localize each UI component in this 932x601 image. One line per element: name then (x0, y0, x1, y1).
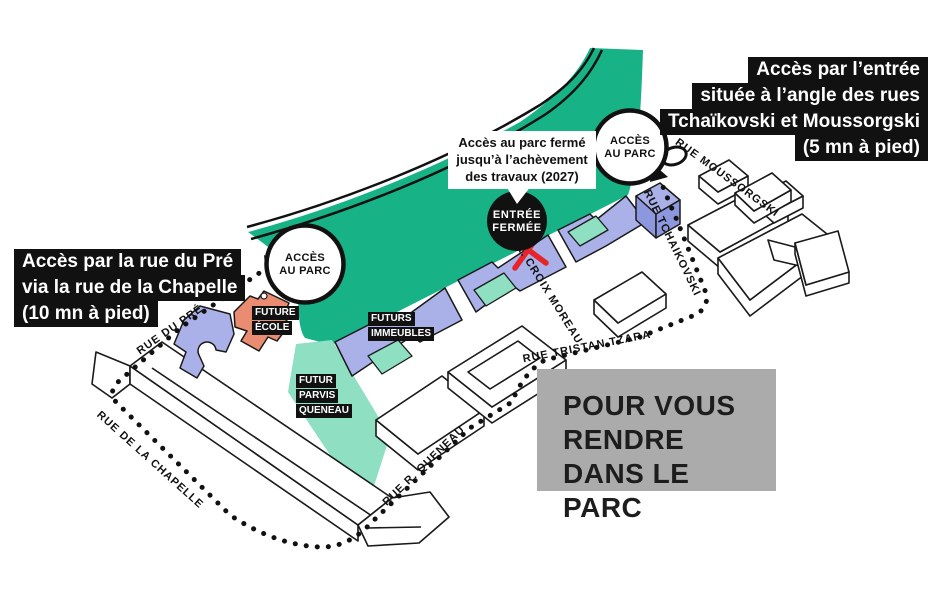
access-circle-left-label: ACCÈS AU PARC (260, 252, 350, 278)
annotation-access-right: Accès par l’entrée située à l’angle des … (660, 57, 928, 161)
destination-panel: POUR VOUS RENDRE DANS LE PARC (537, 369, 776, 491)
label-future-ecole: FUTURE ÉCOLE (252, 306, 299, 336)
bubble-line: Accès au parc fermé (448, 134, 596, 151)
label-futur-parvis-queneau: FUTUR PARVIS QUENEAU (296, 374, 352, 419)
access-circle-right-label: ACCÈS AU PARC (585, 135, 675, 161)
panel-line: DANS LE PARC (563, 457, 776, 525)
annotation-line: (5 mn à pied) (795, 135, 928, 161)
annotation-line: Tchaïkovski et Moussorgski (660, 109, 928, 135)
closed-entrance-label: ENTRÉE FERMÉE (472, 209, 562, 235)
panel-line: RENDRE (563, 423, 776, 457)
bubble-line: des travaux (2027) (448, 168, 596, 185)
park-access-map: Accès par la rue du Pré via la rue de la… (0, 0, 932, 601)
label-futurs-immeubles: FUTURS IMMEUBLES (368, 312, 434, 342)
annotation-line: située à l’angle des rues (692, 83, 928, 109)
panel-line: POUR VOUS (563, 389, 776, 423)
annotation-access-left: Accès par la rue du Pré via la rue de la… (14, 249, 245, 327)
annotation-line: Accès par la rue du Pré (14, 249, 241, 275)
bubble-line: jusqu’à l’achèvement (448, 151, 596, 168)
annotation-line: Accès par l’entrée (748, 57, 928, 83)
school-notch (261, 293, 267, 299)
closed-notice-bubble: Accès au parc fermé jusqu’à l’achèvement… (448, 131, 596, 189)
annotation-line: (10 mn à pied) (14, 301, 158, 327)
annotation-line: via la rue de la Chapelle (14, 275, 245, 301)
